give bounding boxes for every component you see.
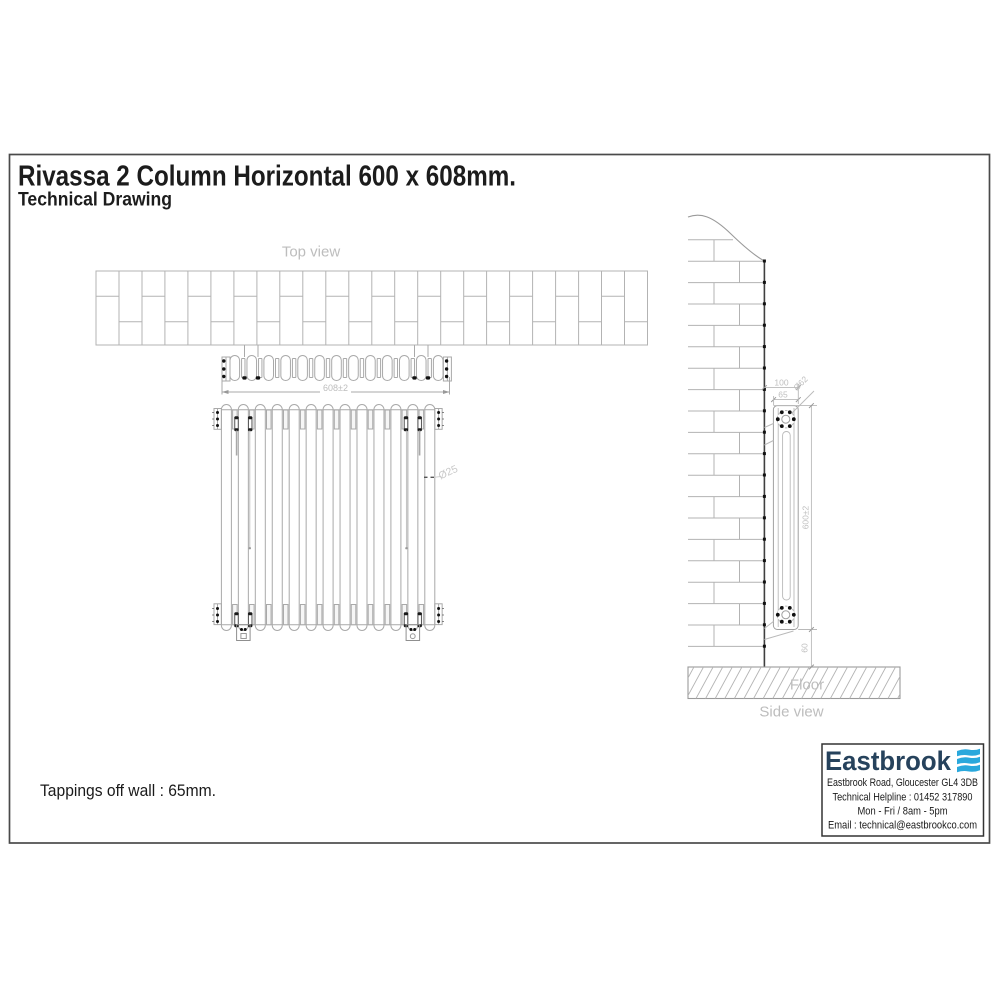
svg-text:Eastbrook: Eastbrook: [825, 746, 952, 776]
svg-text:Technical Helpline : 01452 317: Technical Helpline : 01452 317890: [833, 792, 973, 804]
svg-text:65: 65: [778, 389, 788, 399]
svg-text:Top view: Top view: [282, 244, 341, 261]
svg-text:600±2: 600±2: [801, 505, 811, 529]
svg-text:60: 60: [800, 643, 810, 653]
svg-text:Email : technical@eastbrookco.: Email : technical@eastbrookco.com: [828, 820, 977, 832]
svg-text:Tappings off wall : 65mm.: Tappings off wall : 65mm.: [40, 782, 216, 800]
svg-text:Floor: Floor: [790, 677, 824, 694]
svg-text:Eastbrook Road, Gloucester GL4: Eastbrook Road, Gloucester GL4 3DB: [827, 777, 978, 789]
svg-text:100: 100: [774, 377, 788, 387]
svg-text:Technical Drawing: Technical Drawing: [18, 190, 172, 211]
svg-text:Side view: Side view: [759, 704, 823, 721]
svg-text:608±2: 608±2: [323, 383, 348, 393]
svg-text:Rivassa 2 Column Horizontal 60: Rivassa 2 Column Horizontal 600 x 608mm.: [18, 161, 516, 193]
svg-text:Mon - Fri / 8am - 5pm: Mon - Fri / 8am - 5pm: [858, 806, 948, 818]
